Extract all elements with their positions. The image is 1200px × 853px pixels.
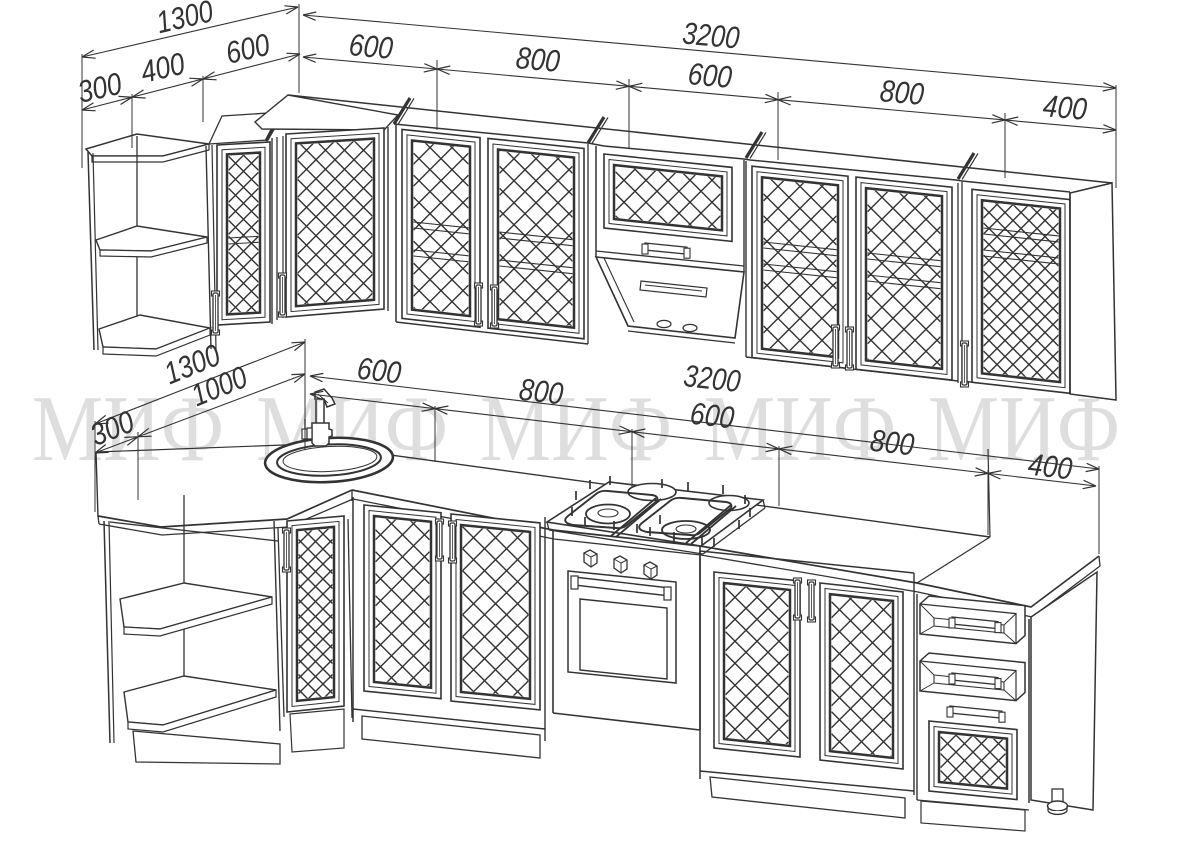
svg-text:600: 600 bbox=[686, 56, 733, 95]
svg-text:3200: 3200 bbox=[681, 16, 741, 56]
svg-text:400: 400 bbox=[1041, 88, 1088, 127]
svg-text:800: 800 bbox=[517, 372, 565, 412]
svg-text:600: 600 bbox=[688, 396, 736, 436]
svg-text:800: 800 bbox=[868, 423, 916, 463]
svg-text:600: 600 bbox=[355, 351, 403, 391]
svg-text:400: 400 bbox=[1026, 447, 1074, 487]
svg-text:3200: 3200 bbox=[682, 358, 742, 399]
svg-text:800: 800 bbox=[514, 40, 561, 79]
svg-text:600: 600 bbox=[347, 27, 394, 66]
svg-text:800: 800 bbox=[878, 73, 925, 112]
